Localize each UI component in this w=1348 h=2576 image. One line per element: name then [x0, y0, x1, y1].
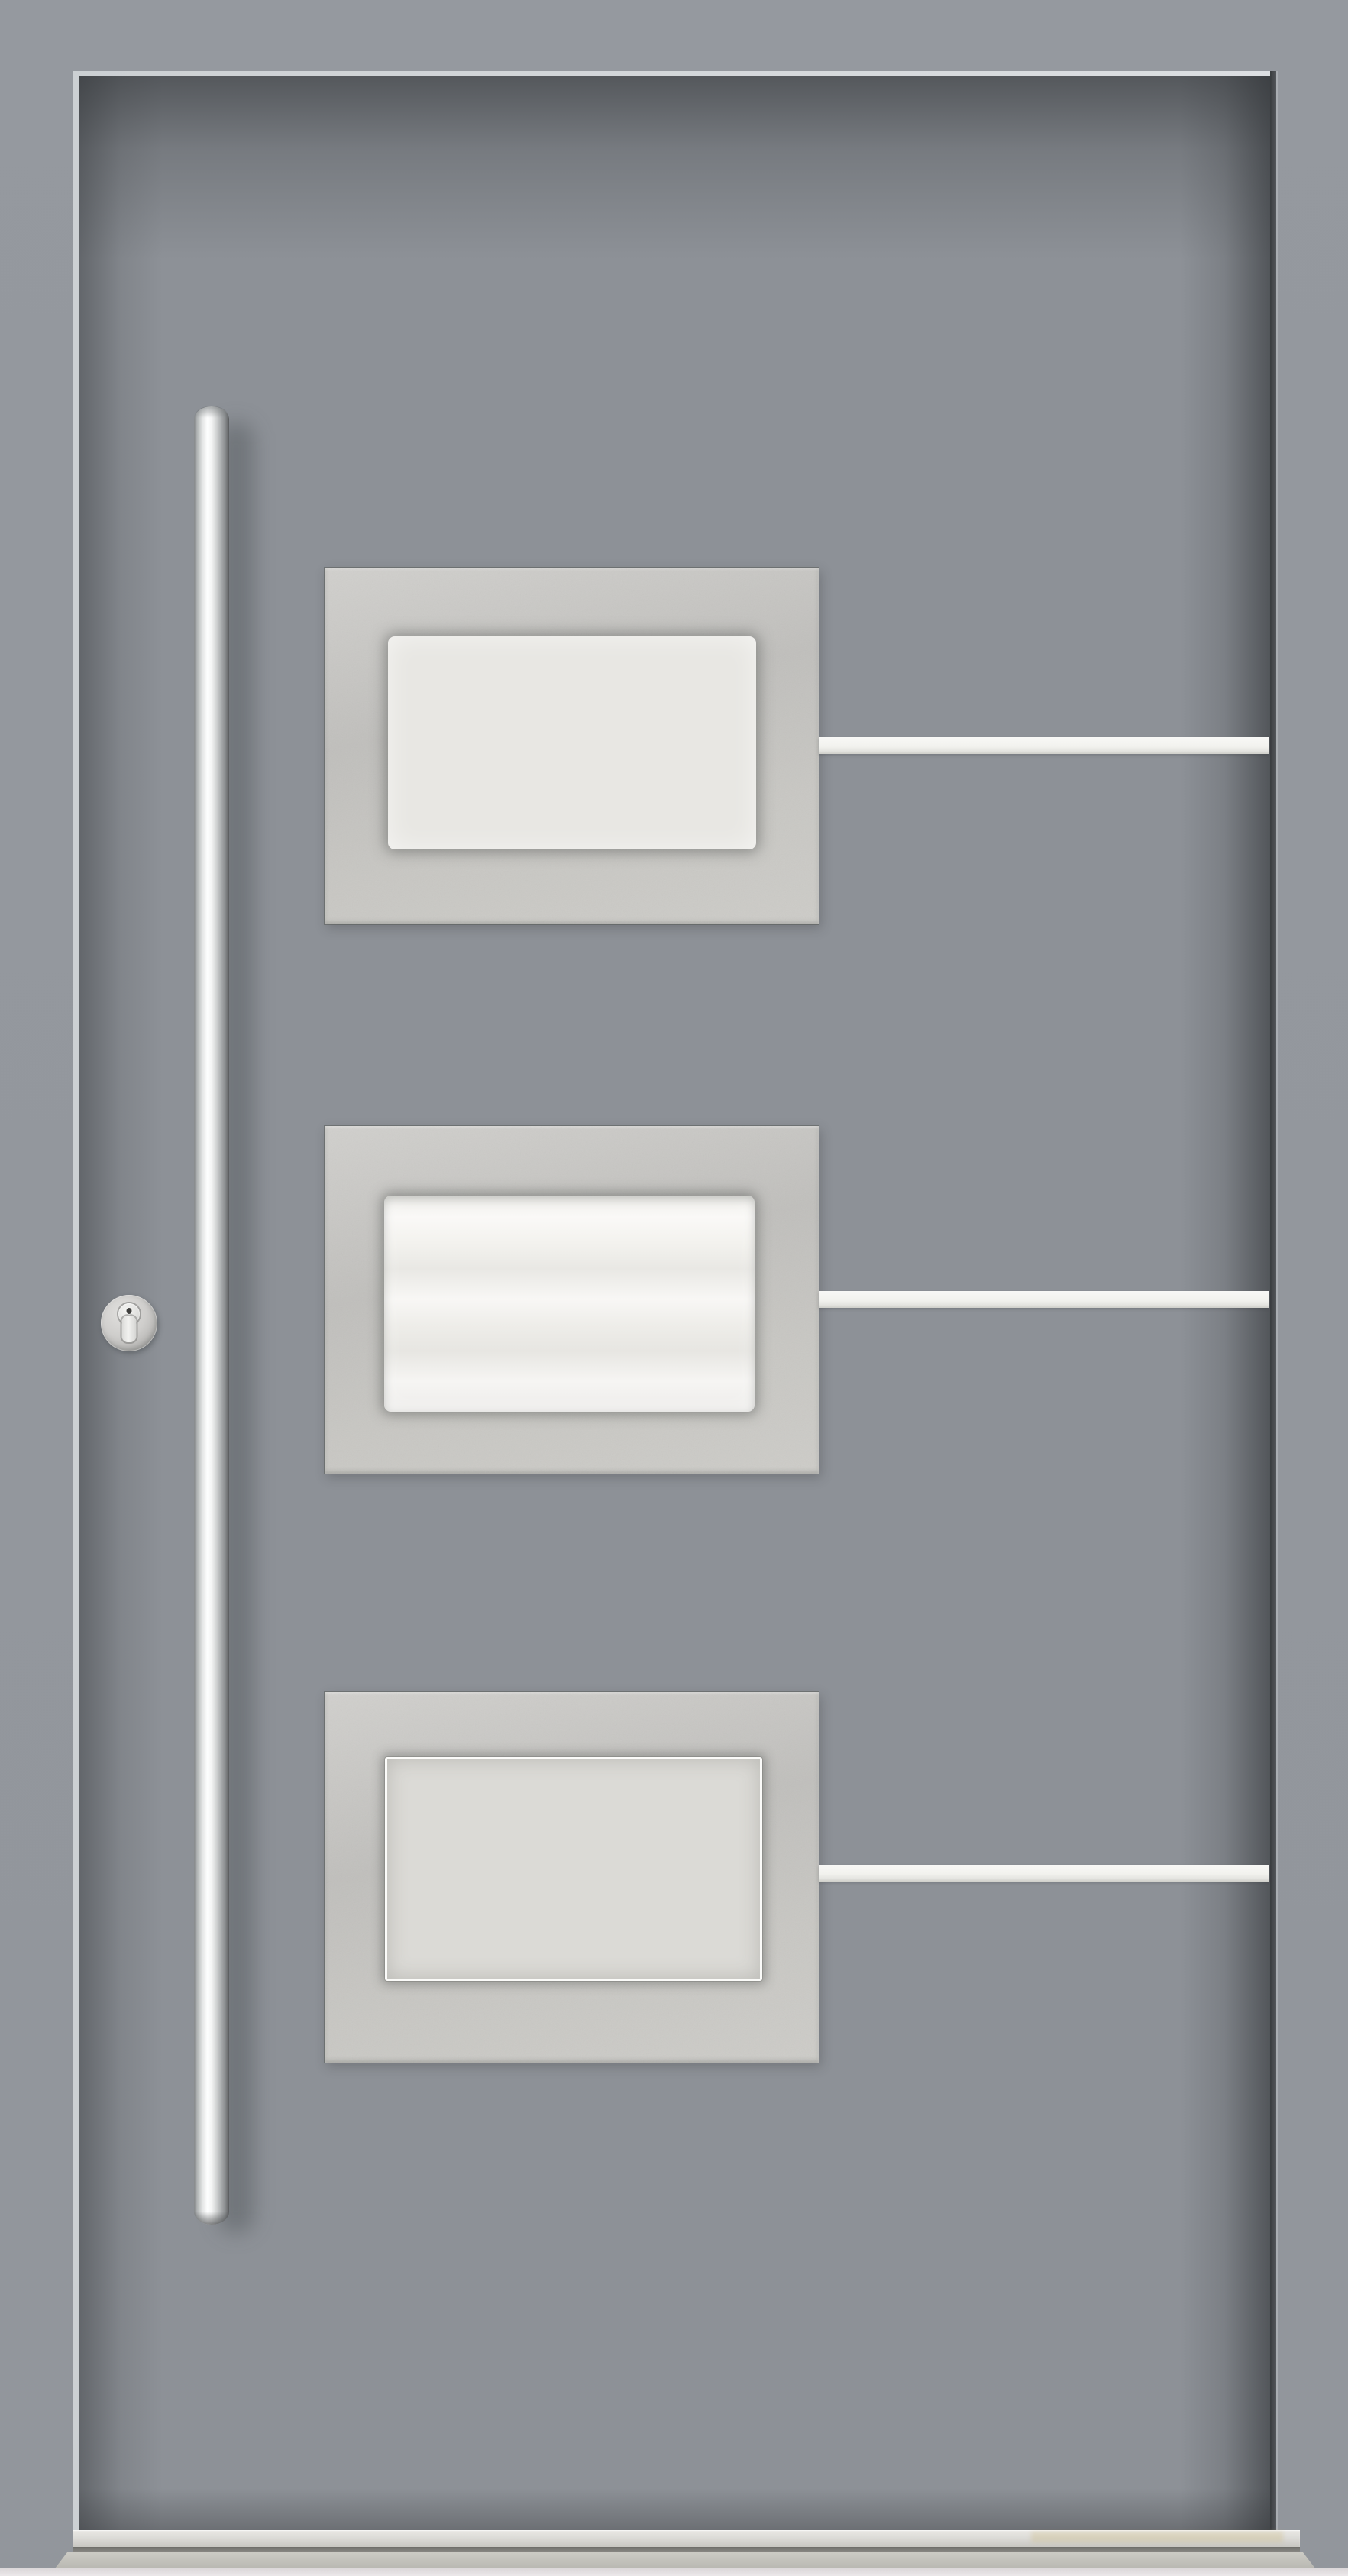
glazing-panel-middle [325, 1126, 819, 1474]
frosted-glass-top [388, 636, 756, 849]
threshold-base [55, 2552, 1315, 2568]
door-leaf [79, 76, 1270, 2530]
lock-rosette[interactable] [101, 1295, 157, 1351]
threshold-sill-bar [73, 2530, 1300, 2547]
frosted-glass-bottom [385, 1757, 762, 1981]
inlay-stripe-middle [819, 1291, 1269, 1308]
sill-shadow-edge [73, 2547, 1300, 2552]
floor-strip [0, 2568, 1348, 2576]
frosted-glass-middle [384, 1196, 755, 1412]
keyhole-icon [127, 1308, 132, 1314]
door-rebate-gap [1270, 71, 1278, 2530]
inlay-stripe-bottom [819, 1865, 1269, 1882]
inlay-stripe-top [819, 737, 1269, 754]
lock-cylinder-body [122, 1316, 137, 1342]
sill-reflection-tint [1031, 2532, 1283, 2542]
entrance-door-product-image [0, 0, 1348, 2576]
glazing-panel-top [325, 568, 819, 924]
glazing-panel-bottom [325, 1692, 819, 2063]
pull-handle-bar[interactable] [194, 406, 229, 2225]
